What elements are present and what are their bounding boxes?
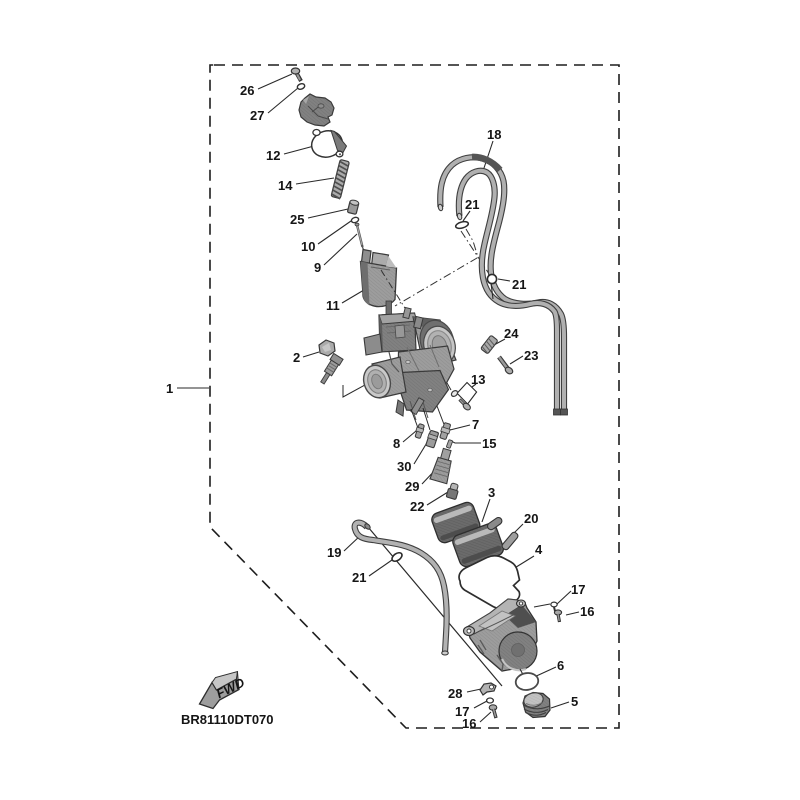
svg-text:28: 28 xyxy=(448,686,462,701)
svg-text:18: 18 xyxy=(487,127,501,142)
svg-text:16: 16 xyxy=(462,716,476,731)
svg-text:15: 15 xyxy=(482,436,496,451)
svg-text:26: 26 xyxy=(240,83,254,98)
svg-text:6: 6 xyxy=(557,658,564,673)
svg-text:4: 4 xyxy=(535,542,543,557)
svg-text:30: 30 xyxy=(397,459,411,474)
svg-text:9: 9 xyxy=(314,260,321,275)
svg-text:1: 1 xyxy=(166,381,173,396)
svg-text:29: 29 xyxy=(405,479,419,494)
svg-text:8: 8 xyxy=(393,436,400,451)
svg-text:7: 7 xyxy=(472,417,479,432)
svg-text:3: 3 xyxy=(488,485,495,500)
svg-text:14: 14 xyxy=(278,178,293,193)
svg-text:10: 10 xyxy=(301,239,315,254)
svg-text:13: 13 xyxy=(471,372,485,387)
svg-text:BR81110DT070: BR81110DT070 xyxy=(181,712,274,727)
svg-text:11: 11 xyxy=(326,298,340,313)
svg-text:22: 22 xyxy=(410,499,424,514)
svg-text:12: 12 xyxy=(266,148,280,163)
svg-text:5: 5 xyxy=(571,694,578,709)
svg-text:23: 23 xyxy=(524,348,538,363)
svg-text:21: 21 xyxy=(465,197,479,212)
svg-text:16: 16 xyxy=(580,604,594,619)
svg-text:24: 24 xyxy=(504,326,519,341)
svg-text:27: 27 xyxy=(250,108,264,123)
svg-text:2: 2 xyxy=(293,350,300,365)
svg-text:21: 21 xyxy=(352,570,366,585)
svg-text:19: 19 xyxy=(327,545,341,560)
svg-text:17: 17 xyxy=(571,582,585,597)
svg-text:25: 25 xyxy=(290,212,304,227)
svg-text:21: 21 xyxy=(512,277,526,292)
svg-text:20: 20 xyxy=(524,511,538,526)
